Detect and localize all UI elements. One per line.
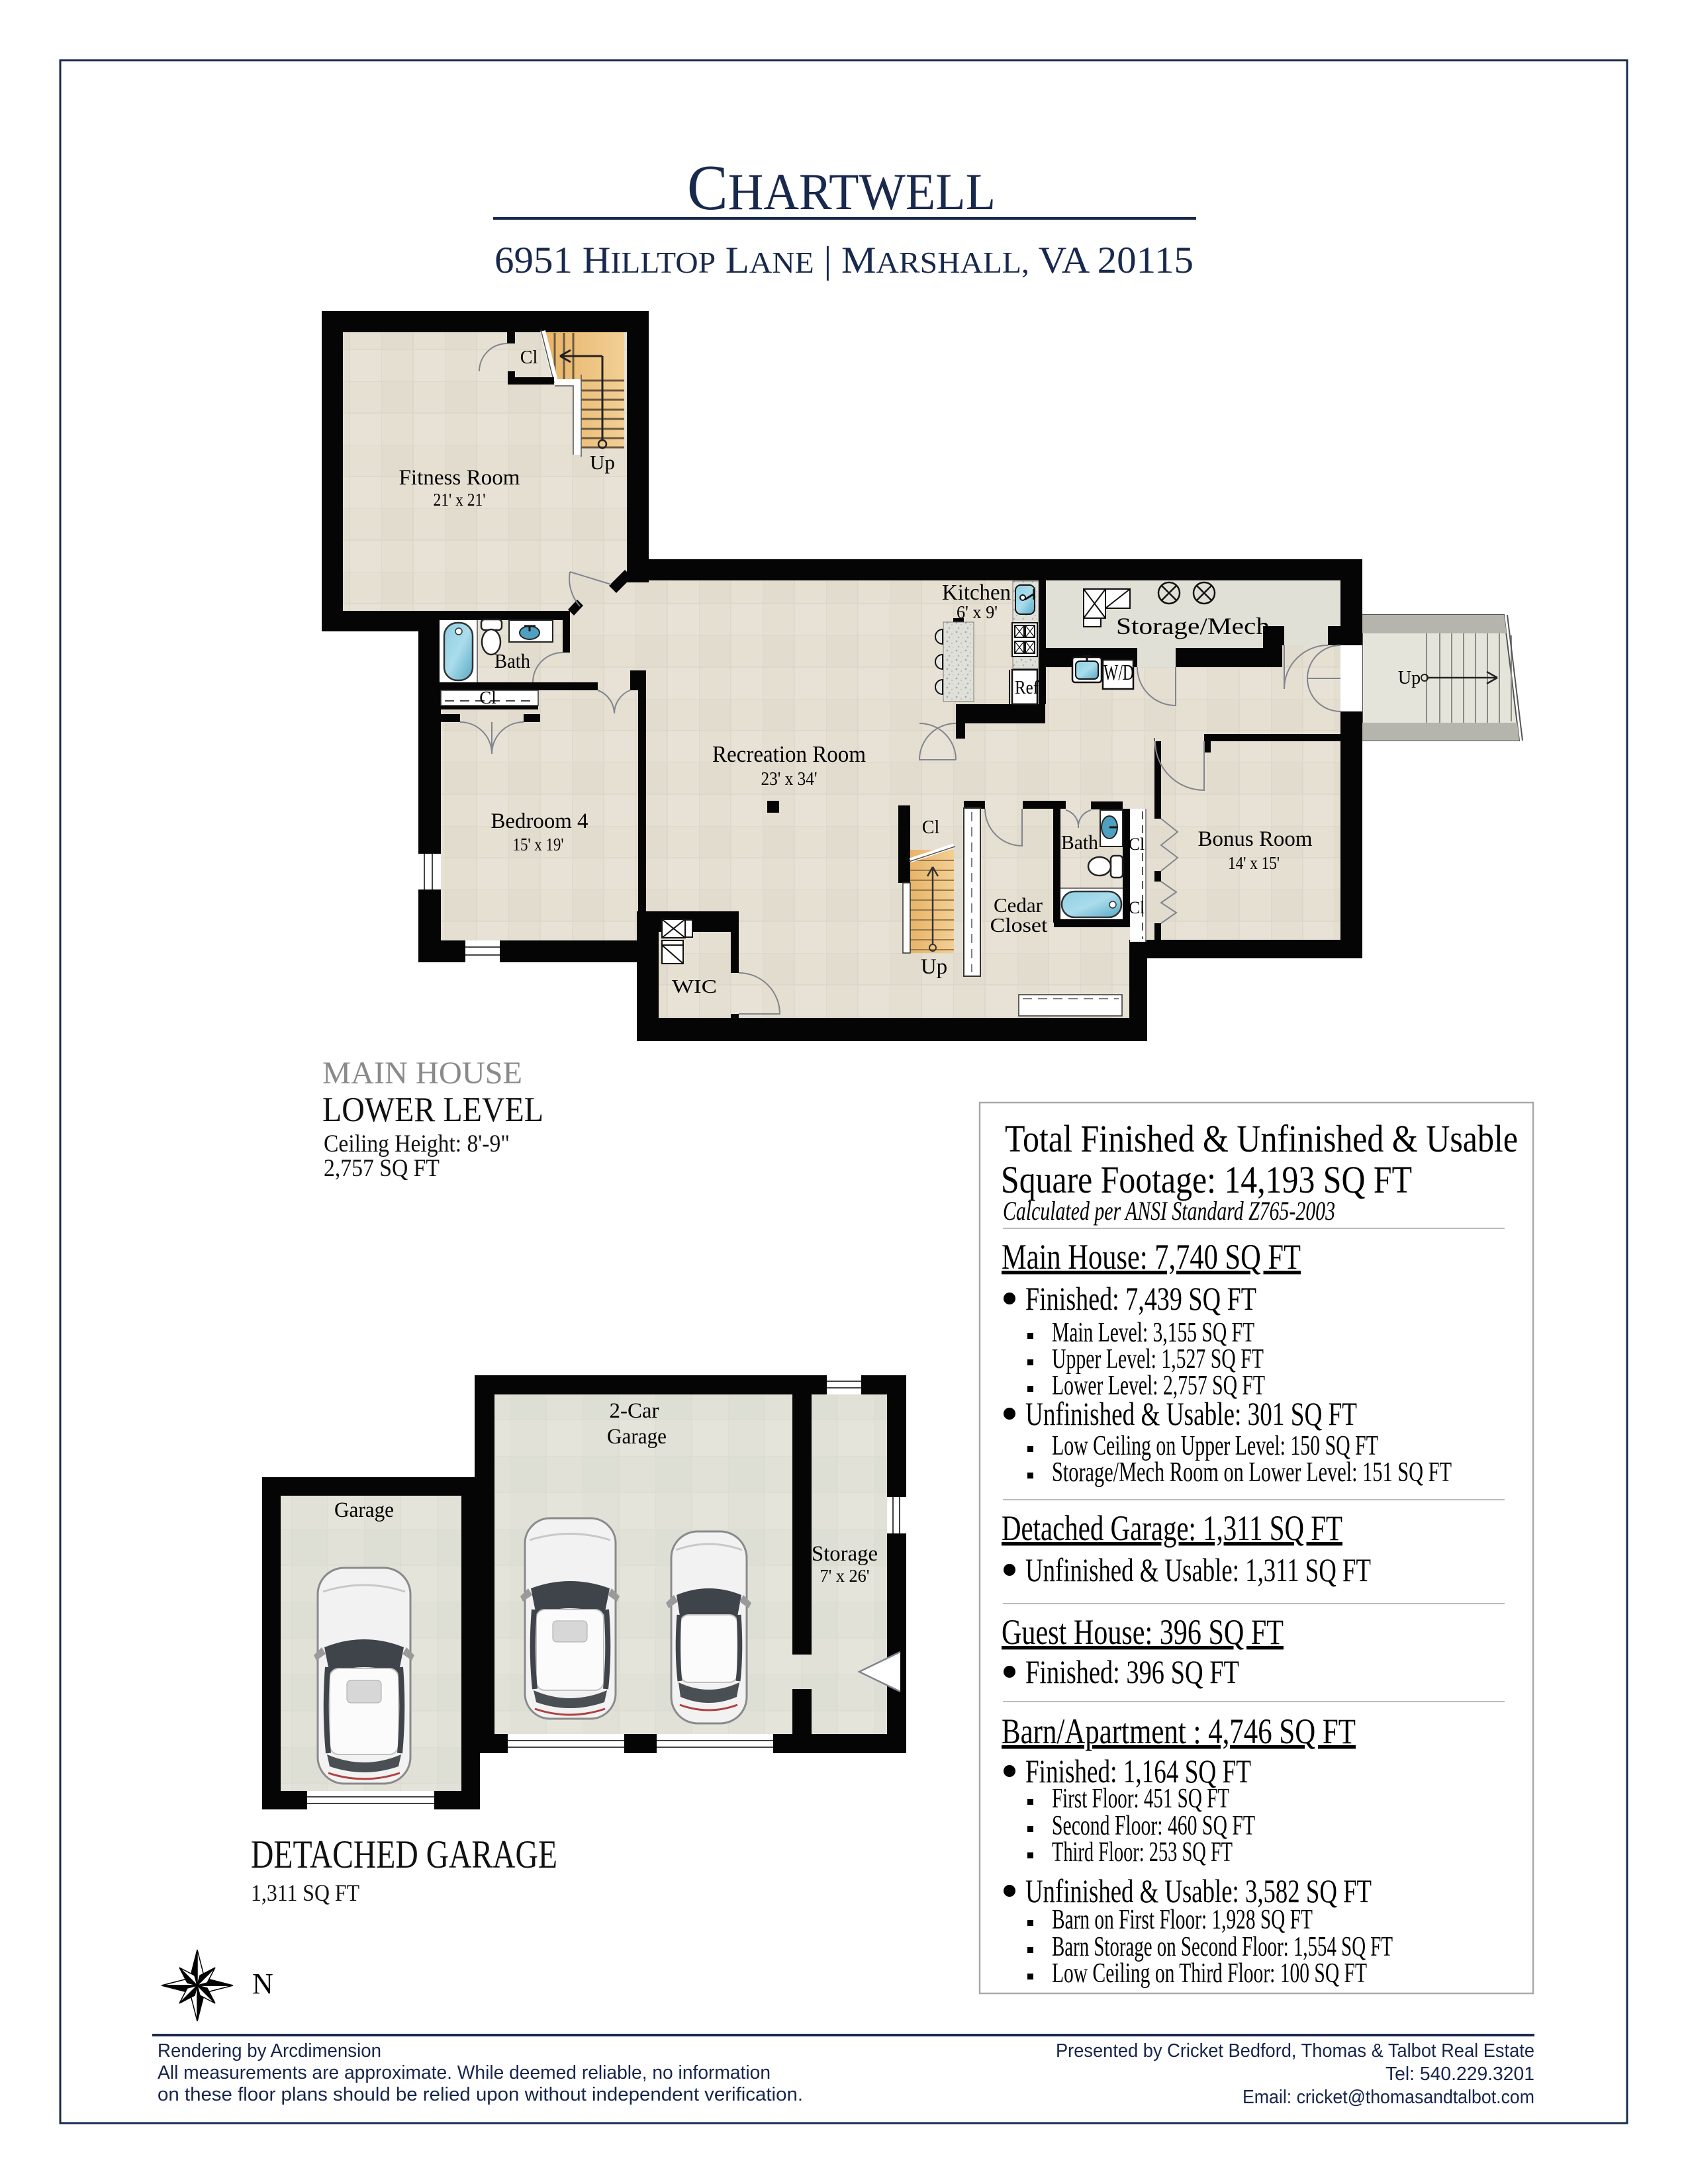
svg-text:W/D: W/D	[1103, 660, 1134, 685]
svg-text:Cl: Cl	[520, 347, 538, 368]
svg-text:Storage/Mech: Storage/Mech	[1116, 613, 1270, 639]
svg-text:Finished: 7,439 SQ FT: Finished: 7,439 SQ FT	[1025, 1280, 1256, 1317]
svg-text:Email: cricket@thomasandtalbot: Email: cricket@thomasandtalbot.com	[1243, 2087, 1534, 2108]
svg-text:Up: Up	[921, 955, 947, 979]
svg-text:Bath: Bath	[1061, 831, 1098, 854]
svg-text:Finished: 396 SQ FT: Finished: 396 SQ FT	[1025, 1653, 1239, 1690]
svg-text:Square Footage: 14,193 SQ FT: Square Footage: 14,193 SQ FT	[1001, 1158, 1412, 1201]
svg-text:LOWER LEVEL: LOWER LEVEL	[322, 1091, 543, 1129]
svg-text:Garage: Garage	[334, 1498, 394, 1522]
svg-text:Ref: Ref	[1015, 677, 1039, 698]
svg-text:Unfinished & Usable: 3,582 SQ: Unfinished & Usable: 3,582 SQ FT	[1025, 1872, 1372, 1909]
svg-text:Unfinished & Usable: 301 SQ FT: Unfinished & Usable: 301 SQ FT	[1025, 1395, 1357, 1432]
svg-text:Guest House: 396 SQ FT: Guest House: 396 SQ FT	[1002, 1612, 1284, 1652]
svg-text:Cl: Cl	[1129, 898, 1145, 917]
svg-text:N: N	[252, 1968, 273, 2000]
svg-text:Ceiling Height: 8'-9": Ceiling Height: 8'-9"	[324, 1130, 510, 1158]
svg-text:2-Car: 2-Car	[610, 1399, 659, 1423]
svg-text:Garage: Garage	[607, 1425, 667, 1449]
svg-text:Cl: Cl	[479, 688, 496, 707]
svg-text:Rendering by Arcdimension: Rendering by Arcdimension	[158, 2040, 381, 2062]
svg-text:Fitness Room: Fitness Room	[399, 466, 520, 490]
svg-text:Low Ceiling on Third Floor: 10: Low Ceiling on Third Floor: 100 SQ FT	[1052, 1958, 1367, 1989]
svg-text:1,311 SQ FT: 1,311 SQ FT	[251, 1880, 359, 1906]
svg-text:21' x 21': 21' x 21'	[434, 490, 486, 510]
svg-text:Up: Up	[1398, 668, 1421, 688]
svg-text:Barn/Apartment : 4,746 SQ FT: Barn/Apartment : 4,746 SQ FT	[1002, 1711, 1356, 1751]
svg-text:First Floor: 451 SQ FT: First Floor: 451 SQ FT	[1052, 1784, 1229, 1814]
svg-text:Bath: Bath	[494, 649, 530, 672]
svg-text:Total Finished & Unfinished &: Total Finished & Unfinished & Usable	[1005, 1117, 1518, 1160]
svg-text:Unfinished & Usable: 1,311 SQ: Unfinished & Usable: 1,311 SQ FT	[1025, 1551, 1371, 1588]
svg-text:Closet: Closet	[990, 913, 1048, 936]
svg-text:Detached Garage: 1,311 SQ FT: Detached Garage: 1,311 SQ FT	[1002, 1508, 1342, 1548]
svg-text:MAIN HOUSE: MAIN HOUSE	[322, 1056, 522, 1091]
svg-text:All measurements are approxima: All measurements are approximate. While …	[158, 2062, 771, 2083]
svg-text:on these floor plans should be: on these floor plans should be relied up…	[158, 2084, 803, 2105]
svg-text:14' x 15': 14' x 15'	[1228, 853, 1280, 873]
svg-text:CHARTWELL: CHARTWELL	[687, 152, 996, 223]
svg-text:2,757 SQ FT: 2,757 SQ FT	[324, 1155, 440, 1182]
svg-text:Presented by Cricket Bedford,: Presented by Cricket Bedford, Thomas & T…	[1056, 2040, 1534, 2062]
svg-text:7' x 26': 7' x 26'	[820, 1566, 870, 1586]
svg-text:Storage: Storage	[812, 1542, 878, 1566]
svg-text:Tel: 540.229.3201: Tel: 540.229.3201	[1385, 2064, 1534, 2085]
svg-text:6951 HILLTOP LANE | MARSHALL,: 6951 HILLTOP LANE | MARSHALL, VA 20115	[494, 240, 1194, 281]
svg-text:Third Floor: 253 SQ FT: Third Floor: 253 SQ FT	[1052, 1837, 1233, 1868]
svg-text:Calculated per ANSI Standard Z: Calculated per ANSI Standard Z765-2003	[1003, 1196, 1335, 1226]
svg-text:WIC: WIC	[672, 977, 717, 997]
svg-text:Cl: Cl	[1129, 835, 1145, 854]
svg-text:Recreation Room: Recreation Room	[712, 741, 866, 767]
svg-text:Main House: 7,740 SQ FT: Main House: 7,740 SQ FT	[1002, 1237, 1301, 1277]
svg-text:6' x 9': 6' x 9'	[957, 602, 998, 622]
svg-text:Kitchen: Kitchen	[942, 580, 1011, 605]
svg-text:Bedroom 4: Bedroom 4	[491, 809, 588, 833]
svg-text:DETACHED GARAGE: DETACHED GARAGE	[251, 1833, 557, 1876]
svg-text:15' x 19': 15' x 19'	[513, 835, 564, 854]
svg-text:Barn on First Floor: 1,928 SQ: Barn on First Floor: 1,928 SQ FT	[1052, 1905, 1313, 1935]
svg-text:Storage/Mech Room on Lower Lev: Storage/Mech Room on Lower Level: 151 SQ…	[1052, 1457, 1452, 1488]
svg-text:Up: Up	[590, 451, 615, 474]
svg-text:Bonus Room: Bonus Room	[1198, 827, 1313, 851]
svg-text:Cl: Cl	[922, 817, 940, 838]
svg-text:23' x 34': 23' x 34'	[761, 769, 818, 790]
